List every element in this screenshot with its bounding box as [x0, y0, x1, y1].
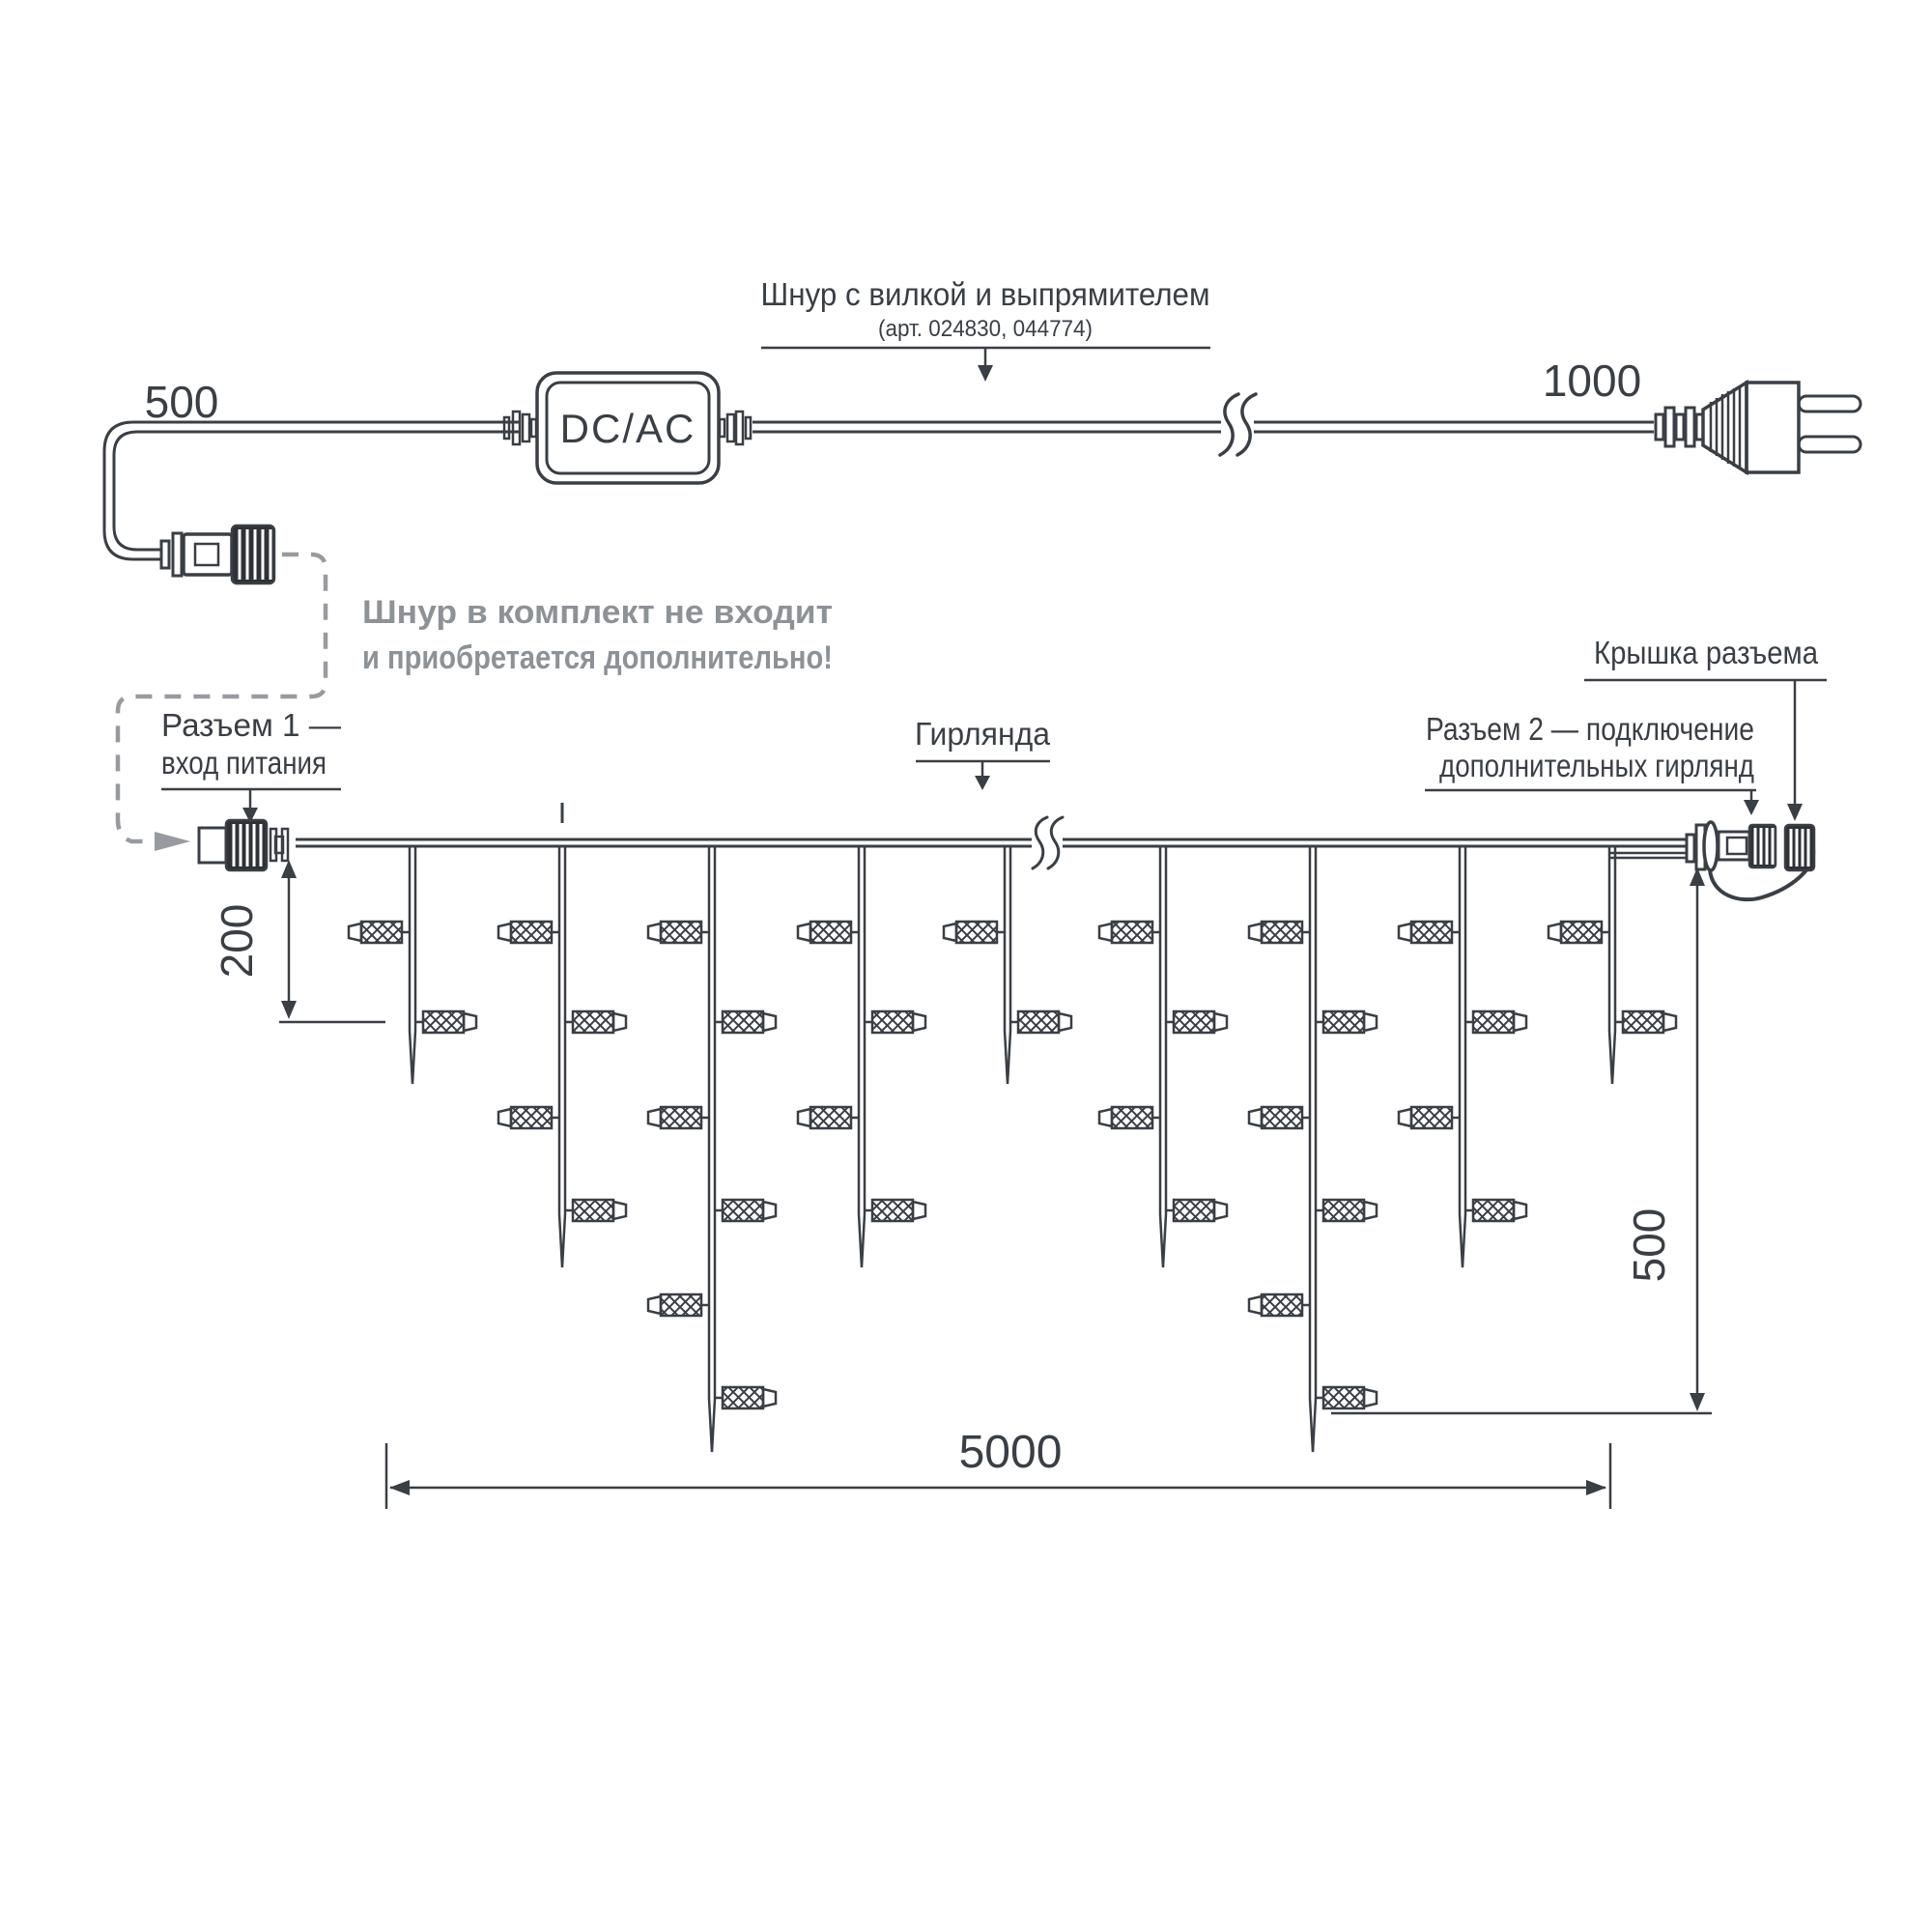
bulb-icon	[1099, 922, 1160, 943]
wire-break-icon	[1033, 817, 1063, 868]
cord-left-length-label: 500	[145, 377, 219, 427]
connector2-label-line2: дополнительных гирлянд	[1439, 748, 1754, 783]
bulb-icon	[865, 1011, 925, 1033]
box-left-clamp	[504, 412, 536, 444]
arrow-down-icon	[975, 776, 990, 790]
cord-right-length-label: 1000	[1543, 355, 1641, 406]
dashed-arrow-icon	[155, 832, 190, 851]
arrow-down-icon	[1744, 800, 1759, 815]
dimension-500-drop: 500	[1331, 867, 1712, 1413]
dcac-label: DC/AC	[560, 406, 696, 451]
note-line2: и приобретается дополнительно!	[362, 639, 833, 676]
bulb-icon	[648, 922, 709, 943]
bulb-icon	[1615, 1011, 1676, 1033]
bulb-icon	[1166, 1011, 1227, 1033]
bulb-icon	[1316, 1200, 1377, 1221]
connector1-label-line2: вход питания	[161, 745, 327, 781]
dim-200-label: 200	[212, 904, 262, 979]
connector1	[199, 820, 288, 870]
note-line1: Шнур в комплект не входит	[362, 594, 833, 631]
bulb-icon	[798, 922, 859, 943]
bulb-icon	[944, 922, 1005, 943]
arrow-down-icon	[978, 365, 993, 382]
bulb-icon	[565, 1200, 626, 1221]
dim-5000-label: 5000	[959, 1427, 1063, 1478]
bulb-icon	[1399, 1107, 1460, 1128]
bulb-icon	[1249, 922, 1310, 943]
garland-drop	[648, 847, 776, 1452]
dcac-converter-box: DC/AC	[537, 373, 719, 483]
bulb-icon	[1548, 922, 1609, 943]
garland-drops	[349, 847, 1676, 1452]
bulb-icon	[1249, 1107, 1310, 1128]
garland-drop	[1099, 847, 1227, 1267]
cord-end-connector	[161, 526, 274, 583]
garland-wire	[296, 803, 1687, 868]
garland-drop	[1548, 847, 1676, 1084]
connector2-knurl	[1749, 825, 1776, 867]
arrow-right-icon	[1586, 1480, 1606, 1495]
arrow-down-icon	[281, 1001, 297, 1019]
bulb-icon	[798, 1107, 859, 1128]
bulb-icon	[498, 922, 559, 943]
bulb-icon	[1010, 1011, 1071, 1033]
arrow-down-icon	[1787, 804, 1803, 821]
mains-plug-icon	[1656, 383, 1861, 472]
garland-drop	[498, 847, 626, 1267]
bulb-icon	[648, 1294, 709, 1316]
garland-drop	[1399, 847, 1526, 1267]
o-ring-icon	[1704, 822, 1718, 870]
bulb-icon	[565, 1011, 626, 1033]
dimension-5000: 5000	[386, 1427, 1610, 1509]
arrow-down-icon	[1690, 1393, 1705, 1411]
bulb-icon	[715, 1011, 776, 1033]
bulb-icon	[1316, 1387, 1377, 1408]
cord-callout-subtitle: (арт. 024830, 044774)	[878, 316, 1093, 342]
bulb-icon	[865, 1200, 925, 1221]
garland-drop	[944, 847, 1071, 1084]
connector2-callout: Разъем 2 — подключение дополнительных ги…	[1425, 711, 1759, 815]
bulb-icon	[498, 1107, 559, 1128]
arrow-up-icon	[281, 860, 297, 878]
bulb-icon	[415, 1011, 476, 1033]
cord-left-cable	[104, 422, 519, 559]
garland-drop	[1249, 847, 1377, 1452]
arrow-left-icon	[389, 1480, 410, 1495]
connector-cap	[1785, 825, 1814, 870]
cable-break-icon	[1220, 394, 1256, 455]
bulb-icon	[1316, 1011, 1377, 1033]
garland	[199, 803, 1814, 1452]
connector1-knurl	[226, 820, 267, 870]
bulb-icon	[1465, 1011, 1526, 1033]
connector2	[1687, 822, 1814, 899]
connector1-callout: Разъем 1 — вход питания	[161, 707, 341, 823]
bulb-icon	[349, 922, 410, 943]
garland-label: Гирлянда	[915, 716, 1051, 752]
connector1-label-line1: Разъем 1 —	[161, 707, 341, 743]
connector-knurled-cap	[232, 526, 274, 583]
power-cord-assembly: 500 1000 D	[104, 276, 1861, 583]
dim-500-label: 500	[1624, 1208, 1674, 1283]
icicle-garland-diagram: 500 1000 D	[0, 0, 1932, 1932]
bulb-icon	[1399, 922, 1460, 943]
bulb-icon	[715, 1200, 776, 1221]
cap-label: Крышка разъема	[1594, 635, 1819, 670]
bulb-icon	[1166, 1200, 1227, 1221]
not-included-note: Шнур в комплект не входит и приобретаетс…	[118, 554, 833, 851]
bulb-icon	[648, 1107, 709, 1128]
garland-drop	[349, 847, 476, 1084]
bulb-icon	[1099, 1107, 1160, 1128]
cord-right-cable	[753, 394, 1654, 455]
cord-callout-title: Шнур с вилкой и выпрямителем	[761, 276, 1210, 312]
connector2-label-line1: Разъем 2 — подключение	[1426, 711, 1754, 747]
garland-drop	[798, 847, 925, 1267]
dashed-connection-path	[118, 554, 326, 841]
bulb-icon	[1249, 1294, 1310, 1316]
garland-callout: Гирлянда	[915, 716, 1051, 790]
bulb-icon	[1465, 1200, 1526, 1221]
box-right-clamp	[720, 412, 751, 444]
bulb-icon	[715, 1387, 776, 1408]
cord-callout: Шнур с вилкой и выпрямителем (арт. 02483…	[761, 276, 1211, 382]
